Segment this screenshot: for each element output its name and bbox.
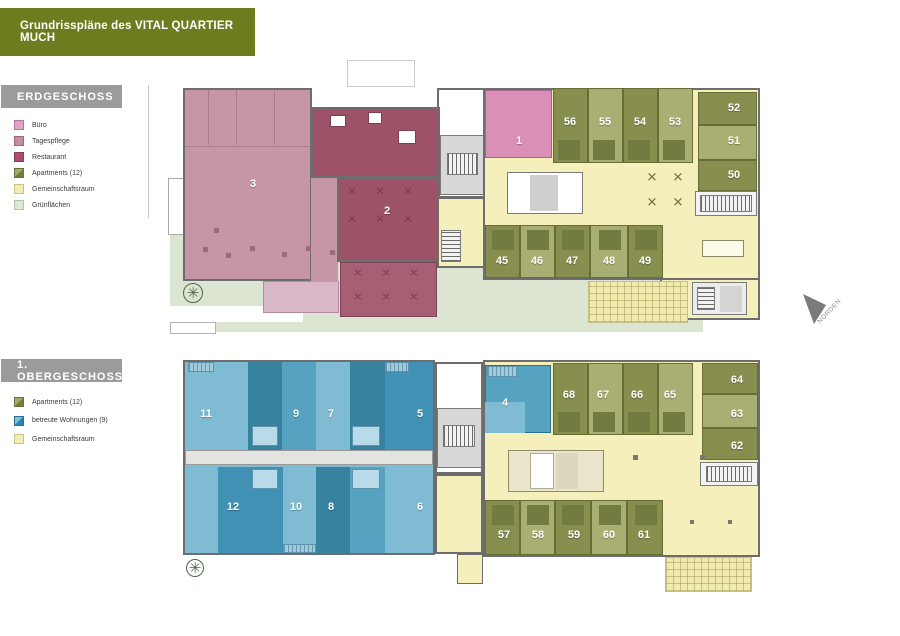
service-core-cell bbox=[530, 175, 558, 211]
apartment-67 bbox=[588, 363, 623, 435]
stair-box bbox=[700, 462, 758, 486]
pillar bbox=[700, 455, 705, 460]
room-restaurant-back bbox=[312, 107, 440, 178]
table-icon: ✕ bbox=[353, 269, 362, 280]
sign-box bbox=[170, 322, 216, 334]
legend-swatch bbox=[14, 168, 24, 178]
elevator-core bbox=[440, 135, 485, 195]
apartment-51 bbox=[698, 125, 757, 160]
room-number-61: 61 bbox=[638, 529, 650, 541]
room-number-1: 1 bbox=[516, 135, 522, 147]
wc-box bbox=[368, 112, 382, 124]
apartment-61 bbox=[627, 500, 663, 555]
bath-pod bbox=[352, 469, 380, 489]
balcony-hatched bbox=[385, 362, 409, 372]
room-number-62: 62 bbox=[731, 440, 743, 452]
legend-item: Apartments (12) bbox=[14, 393, 108, 412]
stair-core-shell bbox=[437, 88, 487, 198]
table-icon: ✕ bbox=[375, 187, 384, 198]
tree-icon: ✳ bbox=[186, 559, 204, 577]
room-number-46: 46 bbox=[531, 255, 543, 267]
legend-item-label: Gemeinschaftsraum bbox=[32, 436, 95, 443]
apartment-53 bbox=[658, 88, 693, 163]
room-number-5: 5 bbox=[417, 408, 423, 420]
bath-pod bbox=[492, 505, 514, 525]
apartment-zone bbox=[248, 362, 282, 450]
apartment-52 bbox=[698, 92, 757, 125]
balcony-hatched bbox=[487, 366, 517, 377]
bath-pod bbox=[352, 426, 380, 446]
legend-item: Apartments (12) bbox=[14, 165, 95, 181]
apartment-45 bbox=[485, 225, 520, 278]
table-icon: ✕ bbox=[403, 215, 412, 226]
common-area-ext bbox=[660, 278, 760, 320]
apartment-60 bbox=[591, 500, 627, 555]
legend-item-label: Apartments (12) bbox=[32, 170, 82, 177]
legend-item-label: Grünflächen bbox=[32, 202, 70, 209]
terrace-tagespflege bbox=[263, 281, 339, 313]
bath-pod bbox=[663, 412, 685, 432]
apartment-66 bbox=[623, 363, 658, 435]
bath-pod bbox=[527, 230, 549, 250]
room-restaurant-dining bbox=[337, 178, 440, 262]
legend-obergeschoss: Apartments (12)betreute Wohnungen (9)Gem… bbox=[14, 393, 108, 449]
lawn-area bbox=[170, 229, 703, 332]
room-number-11: 11 bbox=[200, 408, 212, 420]
legend-swatch bbox=[14, 120, 24, 130]
terrace-hatched bbox=[588, 281, 688, 323]
apartment-zone bbox=[218, 467, 283, 553]
bath-pod bbox=[635, 505, 657, 525]
apartment-zone bbox=[385, 362, 433, 450]
legend-swatch bbox=[14, 200, 24, 210]
bath-pod bbox=[593, 140, 615, 160]
bath-pod bbox=[593, 412, 615, 432]
bath-pod bbox=[562, 505, 584, 525]
apartment-58 bbox=[520, 500, 555, 555]
legend-item: Gemeinschaftsraum bbox=[14, 430, 108, 449]
bath-pod bbox=[628, 140, 650, 160]
canopy-roof bbox=[347, 60, 415, 87]
lobby-annex bbox=[457, 554, 483, 584]
table-icon: ✕ bbox=[347, 187, 356, 198]
elevator-core bbox=[437, 408, 482, 468]
lounge-furniture bbox=[306, 246, 311, 251]
bath-pod bbox=[558, 140, 580, 160]
room-number-58: 58 bbox=[532, 529, 544, 541]
wall-line bbox=[274, 90, 275, 145]
apartment-46 bbox=[520, 225, 555, 278]
stairs bbox=[447, 153, 478, 175]
room-buero bbox=[485, 90, 552, 158]
room-number-2: 2 bbox=[384, 205, 390, 217]
stairs bbox=[443, 425, 475, 447]
table-icon: ✕ bbox=[673, 196, 684, 209]
bath-pod bbox=[663, 140, 685, 160]
apartment-4-sub bbox=[485, 402, 525, 433]
section-heading: ERDGESCHOSS bbox=[1, 91, 114, 103]
bath-pod bbox=[558, 412, 580, 432]
legend-item-label: Restaurant bbox=[32, 154, 66, 161]
floorplan-erdgeschoss: ✕✕✕✕✳✕✕✕✕✕✕✕✕✕✕✕✕32156555453525150454647… bbox=[0, 0, 900, 636]
lounge-furniture bbox=[214, 228, 219, 233]
apartment-zone bbox=[350, 467, 385, 553]
apartment-55 bbox=[588, 88, 623, 163]
room-number-67: 67 bbox=[597, 389, 609, 401]
room-tagespflege-ext bbox=[311, 178, 338, 282]
balcony-hatched bbox=[283, 544, 316, 553]
room-number-54: 54 bbox=[634, 116, 646, 128]
legend-divider bbox=[148, 85, 149, 218]
room-number-4: 4 bbox=[502, 397, 508, 409]
room-number-3: 3 bbox=[250, 178, 256, 190]
legend-swatch bbox=[14, 136, 24, 146]
room-number-56: 56 bbox=[564, 116, 576, 128]
apartment-68 bbox=[553, 363, 588, 435]
legend-swatch bbox=[14, 434, 24, 444]
room-number-45: 45 bbox=[496, 255, 508, 267]
apartment-48 bbox=[590, 225, 628, 278]
apartment-56 bbox=[553, 88, 588, 163]
page-title: Grundrisspläne des VITAL QUARTIER MUCH bbox=[0, 20, 255, 44]
conference-table bbox=[702, 240, 744, 257]
north-arrow-icon bbox=[795, 288, 845, 338]
apartment-63 bbox=[702, 394, 758, 428]
room-number-49: 49 bbox=[639, 255, 651, 267]
room-number-7: 7 bbox=[328, 408, 334, 420]
room-number-48: 48 bbox=[603, 255, 615, 267]
room-number-50: 50 bbox=[728, 169, 740, 181]
corridor bbox=[185, 450, 433, 465]
bath-pod bbox=[599, 505, 621, 525]
terrace-hatched bbox=[665, 557, 752, 592]
table-icon: ✕ bbox=[409, 293, 418, 304]
apartment-49 bbox=[628, 225, 663, 278]
service-core bbox=[507, 172, 583, 214]
service-core-cell bbox=[530, 453, 554, 489]
lounge-furniture bbox=[282, 252, 287, 257]
stair-box bbox=[695, 191, 757, 216]
room-number-51: 51 bbox=[728, 135, 740, 147]
room-number-10: 10 bbox=[290, 501, 302, 513]
room-number-6: 6 bbox=[417, 501, 423, 513]
tree-icon: ✳ bbox=[183, 283, 203, 303]
balcony-hatched bbox=[188, 362, 214, 372]
apartment-54 bbox=[623, 88, 658, 163]
legend-item: Gemeinschaftsraum bbox=[14, 181, 95, 197]
wall-line bbox=[236, 90, 237, 145]
room-tagespflege bbox=[183, 88, 312, 281]
apartment-65 bbox=[658, 363, 693, 435]
room-number-9: 9 bbox=[293, 408, 299, 420]
bath-pod bbox=[492, 230, 514, 250]
legend-swatch bbox=[14, 184, 24, 194]
room-number-57: 57 bbox=[498, 529, 510, 541]
apartment-zone bbox=[350, 362, 385, 450]
table-icon: ✕ bbox=[347, 215, 356, 226]
common-area bbox=[483, 88, 760, 280]
title-bar: Grundrisspläne des VITAL QUARTIER MUCH bbox=[0, 8, 255, 56]
page: Grundrisspläne des VITAL QUARTIER MUCH E… bbox=[0, 0, 900, 636]
legend-item-label: Büro bbox=[32, 122, 47, 129]
room-number-55: 55 bbox=[599, 116, 611, 128]
service-core-cell bbox=[556, 453, 578, 489]
table-icon: ✕ bbox=[647, 196, 658, 209]
apartment-4-box bbox=[485, 365, 551, 433]
driveway bbox=[166, 306, 303, 322]
room-number-53: 53 bbox=[669, 116, 681, 128]
legend-item-label: Tagespflege bbox=[32, 138, 70, 145]
stairs bbox=[441, 230, 461, 262]
room-number-65: 65 bbox=[664, 389, 676, 401]
service-core bbox=[508, 450, 604, 492]
bath-pod bbox=[252, 426, 278, 446]
wc-box bbox=[398, 130, 416, 144]
lobby bbox=[435, 474, 483, 554]
north-arrow: NORDEN bbox=[795, 288, 845, 338]
terrace-restaurant bbox=[340, 262, 437, 317]
legend-swatch bbox=[14, 152, 24, 162]
lounge-furniture bbox=[330, 250, 335, 255]
table-icon: ✕ bbox=[647, 171, 658, 184]
section-bar-obergeschoss: 1. OBERGESCHOSS bbox=[1, 359, 122, 382]
bath-pod bbox=[527, 505, 549, 525]
legend-item: Restaurant bbox=[14, 149, 95, 165]
pillar bbox=[633, 455, 638, 460]
legend-swatch bbox=[14, 397, 24, 407]
bath-pod bbox=[599, 230, 621, 250]
wing-betreutes-wohnen bbox=[183, 360, 435, 555]
legend-item-label: Gemeinschaftsraum bbox=[32, 186, 95, 193]
table-icon: ✕ bbox=[403, 187, 412, 198]
wc-box bbox=[330, 115, 346, 127]
rear-core bbox=[692, 282, 747, 315]
section-heading: 1. OBERGESCHOSS bbox=[1, 359, 123, 383]
common-area bbox=[483, 360, 760, 557]
table-icon: ✕ bbox=[375, 215, 384, 226]
legend-item-label: Apartments (12) bbox=[32, 399, 82, 406]
room-number-64: 64 bbox=[731, 374, 743, 386]
lounge-furniture bbox=[203, 247, 208, 252]
table-icon: ✕ bbox=[381, 293, 390, 304]
table-icon: ✕ bbox=[673, 171, 684, 184]
stairs bbox=[700, 195, 752, 212]
room-number-60: 60 bbox=[603, 529, 615, 541]
bath-pod bbox=[562, 230, 584, 250]
apartment-50 bbox=[698, 160, 757, 191]
legend-item-label: betreute Wohnungen (9) bbox=[32, 417, 108, 424]
pillar bbox=[690, 520, 694, 524]
room-number-8: 8 bbox=[328, 501, 334, 513]
table-icon: ✕ bbox=[381, 269, 390, 280]
bath-pod bbox=[628, 412, 650, 432]
apartment-62 bbox=[702, 428, 758, 460]
apartment-64 bbox=[702, 363, 758, 394]
room-number-63: 63 bbox=[731, 408, 743, 420]
stairs bbox=[697, 287, 715, 310]
wall-line bbox=[185, 146, 310, 147]
room-number-68: 68 bbox=[563, 389, 575, 401]
room-number-66: 66 bbox=[631, 389, 643, 401]
room-number-47: 47 bbox=[566, 255, 578, 267]
stair-core-shell bbox=[435, 362, 483, 474]
outbuilding bbox=[168, 178, 184, 235]
lobby bbox=[437, 197, 487, 268]
stairs bbox=[706, 466, 752, 482]
room-number-52: 52 bbox=[728, 102, 740, 114]
legend-item: betreute Wohnungen (9) bbox=[14, 412, 108, 431]
legend-erdgeschoss: BüroTagespflegeRestaurantApartments (12)… bbox=[14, 117, 95, 213]
bath-pod bbox=[252, 469, 278, 489]
room-number-12: 12 bbox=[227, 501, 239, 513]
section-bar-erdgeschoss: ERDGESCHOSS bbox=[1, 85, 122, 108]
room-number-59: 59 bbox=[568, 529, 580, 541]
legend-item: Grünflächen bbox=[14, 197, 95, 213]
apartment-59 bbox=[555, 500, 591, 555]
table-icon: ✕ bbox=[353, 293, 362, 304]
pillar bbox=[728, 520, 732, 524]
apartment-57 bbox=[485, 500, 520, 555]
legend-item: Tagespflege bbox=[14, 133, 95, 149]
apartment-zone bbox=[282, 362, 316, 450]
bath-pod bbox=[635, 230, 657, 250]
floorplan-obergeschoss: ✳119751210864686766656463625758596061 bbox=[0, 0, 900, 636]
rear-core-cell bbox=[720, 286, 742, 312]
legend-item: Büro bbox=[14, 117, 95, 133]
apartment-47 bbox=[555, 225, 590, 278]
lounge-furniture bbox=[226, 253, 231, 258]
legend-swatch bbox=[14, 416, 24, 426]
lounge-furniture bbox=[250, 246, 255, 251]
apartment-zone bbox=[316, 467, 350, 553]
wall-line bbox=[208, 90, 209, 145]
table-icon: ✕ bbox=[409, 269, 418, 280]
